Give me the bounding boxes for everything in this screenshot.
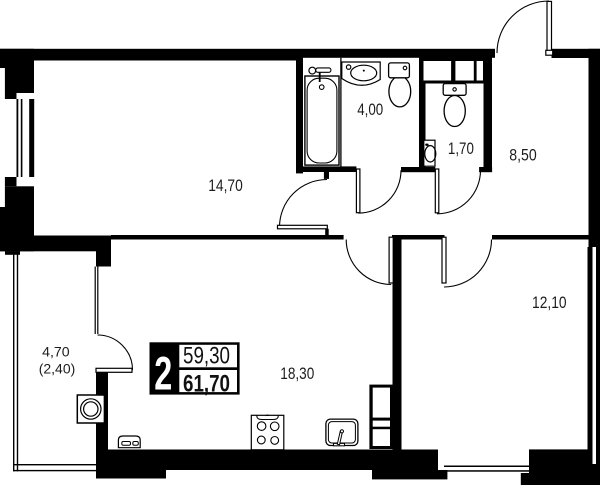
svg-text:4,70: 4,70 [42, 343, 70, 359]
svg-text:8,50: 8,50 [509, 145, 537, 164]
svg-text:61,70: 61,70 [183, 371, 230, 398]
svg-text:2: 2 [154, 347, 172, 400]
svg-text:1,70: 1,70 [448, 139, 474, 158]
svg-text:14,70: 14,70 [208, 176, 243, 195]
svg-text:(2,40): (2,40) [39, 360, 76, 376]
svg-text:12,10: 12,10 [532, 293, 567, 312]
svg-text:59,30: 59,30 [183, 343, 230, 370]
svg-text:4,00: 4,00 [357, 100, 383, 119]
svg-text:18,30: 18,30 [280, 364, 314, 383]
